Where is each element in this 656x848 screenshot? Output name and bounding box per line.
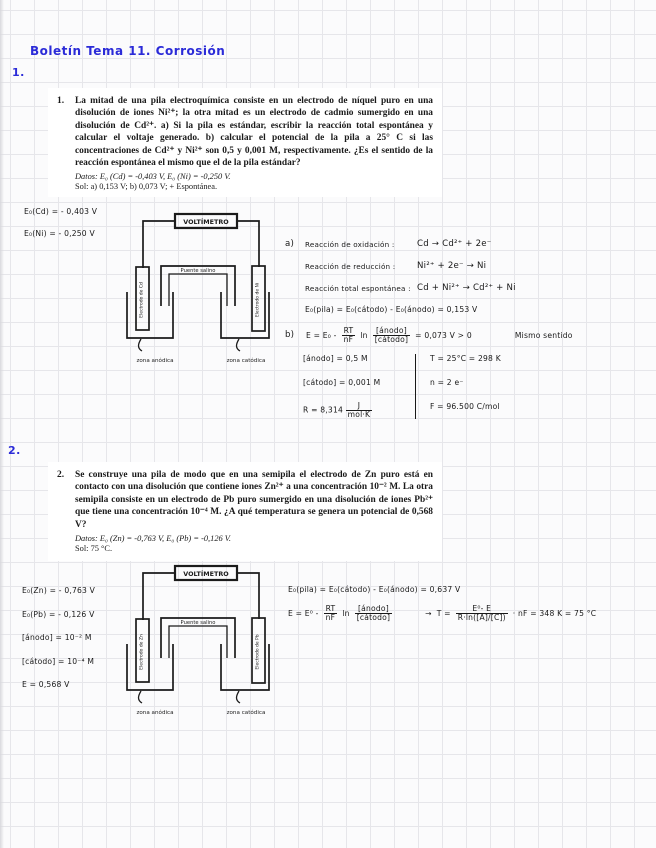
gas-constant: R = 8,314 J mol·K	[303, 402, 415, 419]
temperature-lhs: T =	[437, 609, 451, 618]
cathodic-arrow	[237, 691, 241, 703]
oxidation-equation: Cd → Cd²⁺ + 2e⁻	[417, 239, 492, 249]
left-beaker	[127, 292, 173, 338]
fraction-denominator: R·ln([A]/[C])	[456, 614, 508, 622]
temperature-result: · nF = 348 K = 75 °C	[513, 609, 596, 618]
salt-bridge-inner	[169, 626, 227, 658]
problem-1-statement: La mitad de una pila electroquímica cons…	[75, 95, 433, 169]
anodic-arrow	[139, 339, 143, 351]
problem-2-number: 2.	[57, 469, 69, 553]
left-electrode-label: Electrodo de Zn	[139, 634, 145, 670]
section-b: b) E = E₀ - RT nF ln [ánodo] [cátodo] = …	[285, 327, 573, 419]
nernst-result: = 0,073 V > 0	[415, 331, 472, 340]
left-electrode-label: Electrodo de Cd	[139, 282, 145, 318]
cell-potential-equation: E₀(pila) = E₀(cátodo) - E₀(ánodo) = 0,63…	[288, 585, 596, 594]
margin-number-1: 1.	[12, 66, 25, 79]
salt-bridge-label: Puente salino	[181, 268, 216, 274]
cathodic-zone-label: zona catódica	[227, 709, 266, 716]
cell-potential-value: E = 0,568 V	[22, 680, 95, 689]
fraction-denominator: mol·K	[346, 411, 373, 419]
e0-ni-value: E₀(Ni) = - 0,250 V	[24, 229, 97, 238]
cell-diagram-1: VOLTÍMETRO Puente salino Electrodo de Cd…	[115, 211, 295, 371]
cathode-concentration: [cátodo] = 0,001 M	[303, 378, 415, 387]
problem-2-equations: E₀(pila) = E₀(cátodo) - E₀(ánodo) = 0,63…	[288, 585, 596, 622]
problem-2-block: 2. Se construye una pila de modo que en …	[48, 462, 442, 561]
problem-2-notes: E₀(Zn) = - 0,763 V E₀(Pb) = - 0,126 V [á…	[22, 586, 95, 689]
section-b-label: b)	[285, 330, 301, 340]
anodic-zone-label: zona anódica	[136, 357, 173, 364]
anode-concentration: [ánodo] = 10⁻² M	[22, 633, 95, 642]
problem-2-solution: Sol: 75 °C.	[75, 544, 433, 553]
concentration-fraction: [ánodo] [cátodo]	[355, 605, 392, 622]
e0-pb-value: E₀(Pb) = - 0,126 V	[22, 610, 95, 619]
e0-cd-value: E₀(Cd) = - 0,403 V	[24, 207, 97, 216]
cathodic-arrow	[237, 339, 241, 351]
r-value: R = 8,314	[303, 405, 343, 414]
nernst-lhs: E = E₀ -	[306, 331, 337, 340]
data-column-right: T = 25°C = 298 K n = 2 e⁻ F = 96.500 C/m…	[415, 354, 501, 419]
reduction-label: Reacción de reducción :	[305, 262, 417, 271]
problem-2-datos: Datos: E₀ (Zn) = -0,763 V, E₀ (Pb) = -0,…	[75, 534, 433, 543]
temperature-fraction: E⁰- E R·ln([A]/[C])	[456, 605, 508, 622]
anodic-zone-label: zona anódica	[136, 709, 173, 716]
total-reaction-equation: Cd + Ni²⁺ → Cd²⁺ + Ni	[417, 283, 516, 293]
fraction-denominator: [cátodo]	[373, 336, 410, 344]
concentration-fraction: [ánodo] [cátodo]	[373, 327, 410, 344]
salt-bridge-inner	[169, 274, 227, 306]
problem-1-datos: Datos: E₀ (Cd) = -0,403 V, E₀ (Ni) = -0,…	[75, 172, 433, 181]
cathode-concentration: [cátodo] = 10⁻⁴ M	[22, 657, 95, 666]
rt-nf-fraction: RT nF	[324, 605, 338, 622]
voltmeter-label: VOLTÍMETRO	[183, 217, 229, 226]
reduction-equation: Ni²⁺ + 2e⁻ → Ni	[417, 261, 486, 271]
electron-count: n = 2 e⁻	[430, 378, 501, 387]
e0-zn-value: E₀(Zn) = - 0,763 V	[22, 586, 95, 595]
right-wire	[237, 221, 259, 267]
problem-1-solution: Sol: a) 0,153 V; b) 0,073 V; + Espontáne…	[75, 182, 433, 191]
right-electrode-label: Electrodo de Ni	[255, 283, 261, 317]
implies-arrow: →	[425, 609, 432, 618]
total-reaction-label: Reacción total espontánea :	[305, 284, 417, 293]
fraction-denominator: [cátodo]	[355, 614, 392, 622]
oxidation-label: Reacción de oxidación :	[305, 240, 417, 249]
data-column-left: [ánodo] = 0,5 M [cátodo] = 0,001 M R = 8…	[303, 354, 415, 419]
left-beaker	[127, 644, 173, 690]
rt-nf-fraction: RT nF	[342, 327, 356, 344]
cell-potential-equation: E₀(pila) = E₀(cátodo) - E₀(ánodo) = 0,15…	[305, 305, 477, 314]
same-direction-note: Mismo sentido	[515, 331, 573, 340]
ln-symbol: ln	[360, 331, 367, 340]
temperature-value: T = 25°C = 298 K	[430, 354, 501, 363]
nernst-lhs: E = E⁰ -	[288, 609, 319, 618]
problem-1-block: 1. La mitad de una pila electroquímica c…	[48, 88, 442, 197]
scanned-notes-page: Boletín Tema 11. Corrosión 1. 2. 1. La m…	[0, 0, 656, 848]
left-wire	[143, 221, 175, 268]
voltmeter-label: VOLTÍMETRO	[183, 569, 229, 578]
left-wire	[143, 573, 175, 620]
problem-1-number: 1.	[57, 95, 69, 191]
section-a-label: a)	[285, 239, 305, 249]
cathodic-zone-label: zona catódica	[227, 357, 266, 364]
fraction-denominator: nF	[324, 614, 338, 622]
page-edge-shadow	[0, 0, 4, 848]
faraday-constant: F = 96.500 C/mol	[430, 402, 501, 411]
salt-bridge-label: Puente salino	[181, 620, 216, 626]
r-units-fraction: J mol·K	[346, 402, 373, 419]
margin-number-2: 2.	[8, 444, 21, 457]
page-title: Boletín Tema 11. Corrosión	[30, 44, 225, 58]
fraction-denominator: nF	[342, 336, 356, 344]
anode-concentration: [ánodo] = 0,5 M	[303, 354, 415, 363]
right-electrode-label: Electrodo de Pb	[255, 634, 261, 669]
ln-symbol: ln	[342, 609, 349, 618]
anodic-arrow	[139, 691, 143, 703]
section-a: a) Reacción de oxidación : Cd → Cd²⁺ + 2…	[285, 239, 516, 326]
problem-2-statement: Se construye una pila de modo que en una…	[75, 469, 433, 531]
cell-diagram-2: VOLTÍMETRO Puente salino Electrodo de Zn…	[115, 563, 295, 723]
right-wire	[237, 573, 259, 619]
problem-1-notes: E₀(Cd) = - 0,403 V E₀(Ni) = - 0,250 V	[24, 207, 97, 238]
